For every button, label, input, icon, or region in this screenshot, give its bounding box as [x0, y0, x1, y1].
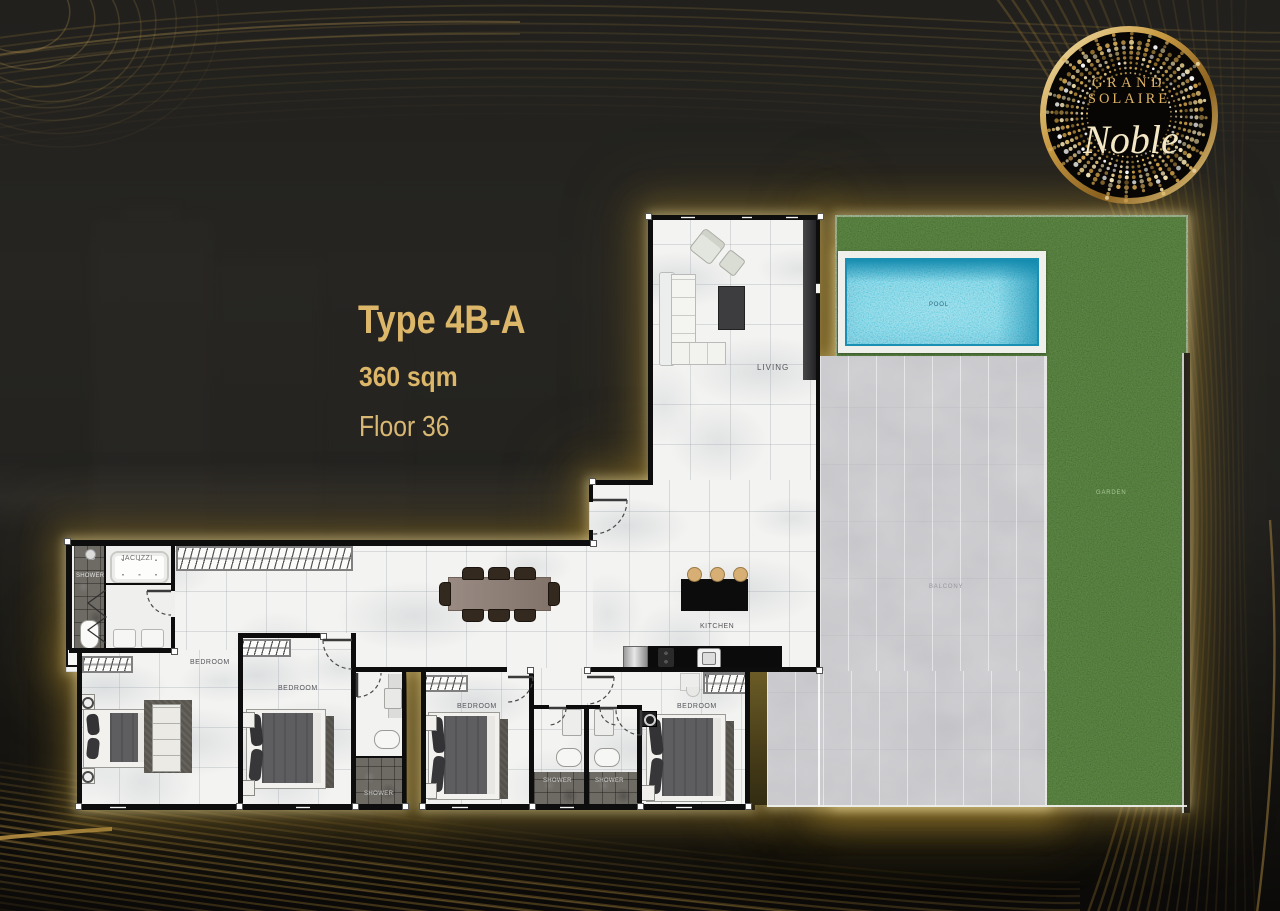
- svg-text:GRAND: GRAND: [1092, 75, 1166, 91]
- svg-text:Noble: Noble: [1082, 117, 1179, 162]
- svg-text:SOLAIRE: SOLAIRE: [1088, 91, 1170, 107]
